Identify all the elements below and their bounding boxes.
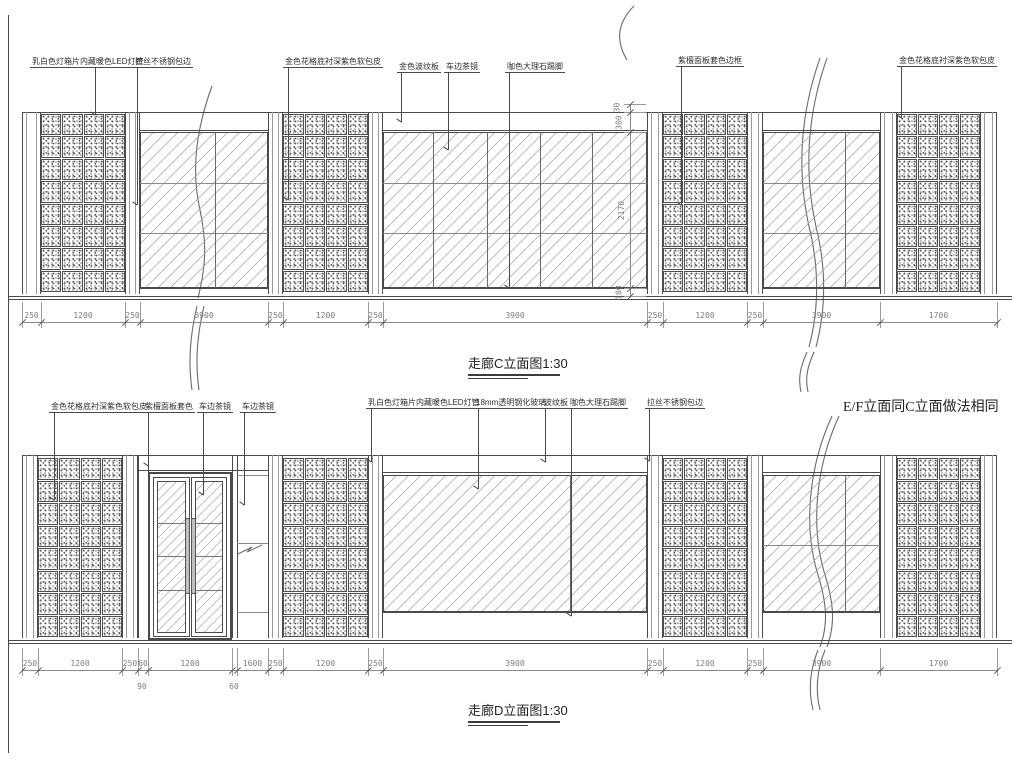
lattice-ornament-cell (897, 503, 917, 525)
lattice-ornament-cell (81, 548, 101, 570)
lattice-ornament-cell (727, 181, 747, 202)
lattice-ornament-cell (897, 571, 917, 593)
material-callout-label: 车边茶镜 (444, 62, 480, 73)
lattice-ornament-cell (960, 271, 980, 292)
lattice-ornament-cell (59, 503, 79, 525)
lattice-ornament-cell (684, 181, 704, 202)
material-callout-label: 咖色大理石踢脚 (568, 398, 628, 409)
lattice-ornament-cell (960, 481, 980, 503)
material-callout-label: 车边茶镜 (197, 402, 233, 413)
lattice-ornament-cell (918, 271, 938, 292)
lattice-ornament-cell (348, 271, 369, 292)
vdim-extension-tick (624, 104, 646, 105)
lattice-ornament-cell (663, 481, 683, 503)
lattice-ornament-cell (326, 526, 347, 548)
lattice-ornament-cell (38, 526, 58, 548)
elev-d-floor-line (8, 640, 1012, 641)
lattice-ornament-cell (81, 571, 101, 593)
stainless-edge-batten (980, 455, 997, 638)
callout-leader-line (545, 409, 546, 462)
lattice-ornament-cell (41, 136, 61, 157)
lattice-ornament-cell (897, 248, 917, 269)
lattice-ornament-cell (939, 593, 959, 615)
lattice-ornament-cell (918, 571, 938, 593)
batten-inner-lines (984, 112, 993, 294)
lattice-ornament-cell (960, 159, 980, 180)
lightbox-band-line (383, 472, 647, 473)
lattice-ornament-cell (84, 114, 104, 135)
lattice-ornament-cell (305, 548, 326, 570)
lattice-ornament-cell (62, 226, 82, 247)
lattice-ornament-cell (81, 526, 101, 548)
lattice-ornament-cell (41, 204, 61, 225)
lattice-ornament-cell (305, 593, 326, 615)
lattice-ornament-cell (960, 114, 980, 135)
lattice-ornament-cell (918, 114, 938, 135)
lattice-ornament-cell (727, 526, 747, 548)
lattice-ornament-cell (305, 159, 326, 180)
lattice-ornament-cell (939, 271, 959, 292)
dimension-extension-line (997, 302, 998, 328)
lattice-ornament-cell (960, 548, 980, 570)
dimension-value: 250 (368, 659, 382, 668)
lattice-ornament-cell (305, 458, 326, 480)
lattice-ornament-cell (105, 248, 125, 269)
lattice-ornament-cell (939, 616, 959, 638)
lattice-ornament-cell (939, 181, 959, 202)
lattice-ornament-cell (727, 271, 747, 292)
lattice-ornament-cell (684, 571, 704, 593)
lattice-ornament-cell (283, 114, 304, 135)
lattice-ornament-cell (706, 248, 726, 269)
marble-skirting-top-line (140, 288, 268, 289)
lattice-ornament-cell (102, 503, 122, 525)
lattice-ornament-cell (939, 248, 959, 269)
dimension-value: 1200 (180, 659, 199, 668)
callout-leader-line (509, 73, 510, 288)
lattice-ornament-cell (684, 114, 704, 135)
lattice-ornament-cell (326, 458, 347, 480)
mirror-mullion-line (487, 132, 488, 288)
lattice-ornament-cell (283, 593, 304, 615)
door-handle (191, 518, 196, 594)
lattice-ornament-cell (918, 136, 938, 157)
lattice-ornament-cell (960, 226, 980, 247)
elev-d-floor-line-2 (8, 643, 1012, 644)
door-muntin-line (157, 556, 185, 557)
material-callout-label: 拉丝不锈钢包边 (645, 398, 705, 409)
lattice-ornament-cell (305, 181, 326, 202)
lattice-ornament-cell (283, 458, 304, 480)
lattice-ornament-cell (105, 159, 125, 180)
lattice-ornament-cell (960, 593, 980, 615)
dimension-value: 3900 (194, 311, 213, 320)
lattice-ornament-cell (897, 159, 917, 180)
dimension-value: 250 (24, 311, 38, 320)
lattice-ornament-cell (305, 571, 326, 593)
vdim-extension-tick (624, 288, 646, 289)
dimension-value: 250 (748, 311, 762, 320)
lattice-ornament-cell (62, 204, 82, 225)
lattice-ornament-cell (727, 548, 747, 570)
lattice-ornament-cell (41, 181, 61, 202)
mirror-joint-line (763, 183, 880, 184)
lattice-ornament-cell (326, 571, 347, 593)
lattice-ornament-cell (283, 481, 304, 503)
lattice-ornament-cell (62, 271, 82, 292)
lattice-ornament-cell (38, 616, 58, 638)
elev-d-dimension-line (22, 670, 997, 671)
door-muntin-line (194, 556, 222, 557)
gold-corrugated-band-line (763, 130, 880, 131)
batten-inner-lines (372, 455, 379, 638)
elev-c-dimension-line (22, 322, 997, 323)
lattice-ornament-cell (62, 114, 82, 135)
elevation-d-title: 走廊D立面图1:30 (468, 700, 568, 719)
lattice-ornament-cell (283, 226, 304, 247)
mirror-mullion-line (215, 132, 216, 288)
dimension-extension-line (383, 302, 384, 328)
skirting-top-line (763, 612, 880, 613)
lattice-ornament-cell (706, 503, 726, 525)
sub-dimension-value: 60 (229, 682, 239, 691)
gold-lattice-panel (41, 114, 125, 292)
lattice-ornament-cell (348, 503, 369, 525)
mirror-joint-line (383, 233, 647, 234)
lattice-ornament-cell (348, 458, 369, 480)
lattice-ornament-cell (102, 571, 122, 593)
lattice-ornament-cell (41, 159, 61, 180)
dimension-extension-line (232, 648, 233, 676)
lattice-ornament-cell (105, 271, 125, 292)
lattice-ornament-cell (663, 271, 683, 292)
lattice-ornament-cell (663, 226, 683, 247)
lattice-ornament-cell (684, 593, 704, 615)
dimension-value: 1200 (695, 659, 714, 668)
lattice-ornament-cell (727, 571, 747, 593)
callout-leader-line (649, 409, 650, 461)
title-underline-2 (468, 378, 528, 379)
dimension-extension-line (283, 648, 284, 676)
batten-inner-lines (372, 112, 379, 294)
dimension-value: 3900 (505, 311, 524, 320)
mirror-joint-line (763, 233, 880, 234)
dimension-value: 3900 (812, 659, 831, 668)
lattice-ornament-cell (38, 593, 58, 615)
lattice-ornament-cell (727, 481, 747, 503)
lattice-ornament-cell (326, 204, 347, 225)
lattice-ornament-cell (663, 204, 683, 225)
lattice-ornament-cell (727, 458, 747, 480)
gold-lattice-panel (38, 458, 122, 637)
material-callout-label: 咖色大理石踢脚 (505, 62, 565, 73)
callout-leader-line (54, 413, 55, 500)
marble-skirting-top-line (383, 288, 647, 289)
sub-dimension-value: 90 (137, 682, 147, 691)
lattice-ornament-cell (81, 481, 101, 503)
lattice-ornament-cell (918, 248, 938, 269)
lattice-ornament-cell (939, 159, 959, 180)
door-leaf-glass (157, 481, 186, 633)
lattice-ornament-cell (684, 526, 704, 548)
dimension-extension-line (140, 302, 141, 328)
material-callout-label: 乳白色灯箱片内藏暖色LED灯管 (30, 57, 146, 68)
lattice-ornament-cell (918, 503, 938, 525)
material-callout-label: 车边茶镜 (240, 402, 276, 413)
lattice-ornament-cell (897, 458, 917, 480)
lattice-ornament-cell (326, 616, 347, 638)
lattice-ornament-cell (727, 226, 747, 247)
callout-leader-line (401, 73, 402, 122)
glass-mullion-line (845, 475, 846, 612)
callout-leader-line (681, 67, 682, 205)
lattice-ornament-cell (59, 593, 79, 615)
lattice-ornament-cell (283, 204, 304, 225)
lattice-ornament-cell (939, 503, 959, 525)
lattice-ornament-cell (283, 136, 304, 157)
lattice-ornament-cell (105, 226, 125, 247)
lattice-ornament-cell (38, 503, 58, 525)
lattice-ornament-cell (960, 136, 980, 157)
lattice-ornament-cell (918, 159, 938, 180)
lattice-ornament-cell (41, 114, 61, 135)
lattice-ornament-cell (663, 593, 683, 615)
lattice-ornament-cell (59, 458, 79, 480)
lattice-ornament-cell (663, 458, 683, 480)
dimension-extension-line (997, 648, 998, 676)
lattice-ornament-cell (326, 159, 347, 180)
dimension-value: 1200 (316, 659, 335, 668)
dimension-extension-line (383, 648, 384, 676)
mirror-mullion-line (540, 132, 541, 288)
lattice-ornament-cell (727, 204, 747, 225)
lattice-ornament-cell (305, 481, 326, 503)
lattice-ornament-cell (305, 503, 326, 525)
lattice-ornament-cell (84, 226, 104, 247)
material-callout-label: 波纹板 (542, 398, 570, 409)
stainless-edge-batten (747, 112, 763, 294)
callout-leader-line (148, 413, 149, 466)
dimension-extension-line (880, 302, 881, 328)
lattice-ornament-cell (918, 226, 938, 247)
stainless-edge-batten (22, 455, 38, 638)
dimension-value: 1200 (316, 311, 335, 320)
lattice-ornament-cell (727, 159, 747, 180)
dimension-value: 250 (123, 659, 137, 668)
lattice-ornament-cell (326, 248, 347, 269)
lattice-ornament-cell (684, 616, 704, 638)
gold-lattice-panel (897, 458, 980, 637)
dimension-extension-line (663, 648, 664, 676)
lattice-ornament-cell (727, 136, 747, 157)
sidelight-frame-line (237, 455, 238, 638)
lattice-ornament-cell (81, 616, 101, 638)
lattice-ornament-cell (706, 271, 726, 292)
lattice-ornament-cell (663, 248, 683, 269)
lattice-ornament-cell (918, 458, 938, 480)
cad-drawing-canvas: 走廊C立面图1:30 走廊D立面图1:30 E/F立面同C立面做法相同 2501… (0, 0, 1024, 768)
lattice-ornament-cell (283, 271, 304, 292)
lattice-ornament-cell (348, 481, 369, 503)
lattice-ornament-cell (706, 159, 726, 180)
lattice-ornament-cell (81, 503, 101, 525)
lattice-ornament-cell (706, 616, 726, 638)
lattice-ornament-cell (918, 526, 938, 548)
lattice-ornament-cell (102, 481, 122, 503)
lattice-ornament-cell (62, 248, 82, 269)
dimension-value: 250 (23, 659, 37, 668)
batten-inner-lines (984, 455, 993, 638)
callout-leader-line (95, 68, 96, 115)
stainless-edge-batten (268, 455, 283, 638)
lattice-ornament-cell (59, 571, 79, 593)
lattice-ornament-cell (326, 181, 347, 202)
callout-leader-line (571, 409, 572, 616)
lattice-ornament-cell (348, 248, 369, 269)
lattice-ornament-cell (939, 458, 959, 480)
lattice-ornament-cell (897, 526, 917, 548)
elevation-c-title-text: 走廊C立面图1:30 (468, 356, 568, 371)
lattice-ornament-cell (41, 226, 61, 247)
lattice-ornament-cell (59, 548, 79, 570)
lattice-ornament-cell (105, 204, 125, 225)
lattice-ornament-cell (918, 593, 938, 615)
lattice-ornament-cell (939, 136, 959, 157)
gold-lattice-panel (663, 458, 747, 637)
lattice-ornament-cell (102, 548, 122, 570)
lattice-ornament-cell (38, 481, 58, 503)
lattice-ornament-cell (326, 481, 347, 503)
lattice-ornament-cell (348, 526, 369, 548)
lattice-ornament-cell (663, 548, 683, 570)
skirting-top-line (383, 612, 647, 613)
lightbox-band-line (763, 472, 880, 473)
lattice-ornament-cell (38, 458, 58, 480)
lattice-ornament-cell (706, 181, 726, 202)
dimension-extension-line (22, 302, 23, 328)
lattice-ornament-cell (305, 248, 326, 269)
lattice-ornament-cell (305, 204, 326, 225)
title-underline-2 (468, 725, 528, 726)
lattice-ornament-cell (918, 548, 938, 570)
lattice-ornament-cell (897, 616, 917, 638)
mirror-mullion-line (845, 132, 846, 288)
dimension-value: 250 (748, 659, 762, 668)
lattice-ornament-cell (897, 548, 917, 570)
sidelight-joint-line (237, 612, 268, 613)
dimension-value: 250 (648, 659, 662, 668)
dimension-extension-line (41, 302, 42, 328)
lattice-ornament-cell (326, 136, 347, 157)
lattice-ornament-cell (305, 526, 326, 548)
lattice-ornament-cell (939, 114, 959, 135)
dimension-value: 250 (268, 311, 282, 320)
lattice-ornament-cell (348, 571, 369, 593)
batten-inner-lines (272, 112, 279, 294)
lattice-ornament-cell (38, 571, 58, 593)
lattice-ornament-cell (706, 571, 726, 593)
lattice-ornament-cell (348, 114, 369, 135)
dimension-extension-line (38, 648, 39, 676)
stainless-edge-batten (647, 112, 663, 294)
lattice-ornament-cell (305, 271, 326, 292)
lattice-ornament-cell (918, 481, 938, 503)
lattice-ornament-cell (960, 458, 980, 480)
batten-inner-lines (884, 455, 893, 638)
lattice-ornament-cell (326, 271, 347, 292)
material-callout-label: 金色波纹板 (397, 62, 441, 73)
gold-lattice-panel (663, 114, 747, 292)
lattice-ornament-cell (84, 271, 104, 292)
title-underline (468, 374, 560, 376)
lattice-ornament-cell (684, 481, 704, 503)
lattice-ornament-cell (62, 181, 82, 202)
mirror-joint-line (383, 183, 647, 184)
lattice-ornament-cell (897, 226, 917, 247)
batten-inner-lines (126, 455, 134, 638)
dimension-value: 60 (138, 659, 148, 668)
stainless-edge-batten (268, 112, 283, 294)
material-callout-label: 金色花格底衬深紫色软包皮 (283, 57, 383, 68)
tempered-glass-panel (383, 475, 647, 612)
stainless-edge-batten (880, 112, 897, 294)
dimension-extension-line (763, 302, 764, 328)
lattice-ornament-cell (84, 248, 104, 269)
lattice-ornament-cell (348, 181, 369, 202)
stainless-edge-batten (122, 455, 138, 638)
lattice-ornament-cell (84, 136, 104, 157)
lattice-ornament-cell (706, 526, 726, 548)
dimension-value: 1700 (929, 311, 948, 320)
lattice-ornament-cell (684, 159, 704, 180)
lattice-ornament-cell (283, 616, 304, 638)
vertical-dimension-value: 2170 (617, 201, 626, 220)
lattice-ornament-cell (706, 204, 726, 225)
lattice-ornament-cell (727, 248, 747, 269)
door-muntin-line (194, 590, 222, 591)
lattice-ornament-cell (105, 136, 125, 157)
lattice-ornament-cell (663, 526, 683, 548)
lattice-ornament-cell (283, 548, 304, 570)
mirror-joint-line (140, 183, 268, 184)
gold-lattice-panel (283, 458, 368, 637)
lattice-ornament-cell (59, 526, 79, 548)
lattice-ornament-cell (84, 181, 104, 202)
tempered-glass-panel (763, 475, 880, 612)
elevation-c-title: 走廊C立面图1:30 (468, 353, 568, 372)
callout-leader-line (371, 409, 372, 462)
lattice-ornament-cell (326, 503, 347, 525)
lattice-ornament-cell (684, 226, 704, 247)
vdim-extension-tick (624, 112, 646, 113)
dimension-extension-line (237, 648, 238, 676)
material-callout-label: 紫檀面板套色 (143, 402, 195, 413)
lattice-ornament-cell (326, 226, 347, 247)
door-muntin-line (157, 523, 185, 524)
lattice-ornament-cell (105, 181, 125, 202)
vertical-dimension-value: 300 (615, 115, 624, 129)
dimension-value: 1200 (70, 659, 89, 668)
callout-leader-line (137, 68, 138, 205)
lattice-ornament-cell (960, 181, 980, 202)
lattice-ornament-cell (706, 481, 726, 503)
lattice-ornament-cell (918, 616, 938, 638)
title-underline (468, 721, 560, 723)
lattice-ornament-cell (102, 526, 122, 548)
lattice-ornament-cell (348, 204, 369, 225)
batten-inner-lines (26, 455, 34, 638)
lattice-ornament-cell (81, 458, 101, 480)
